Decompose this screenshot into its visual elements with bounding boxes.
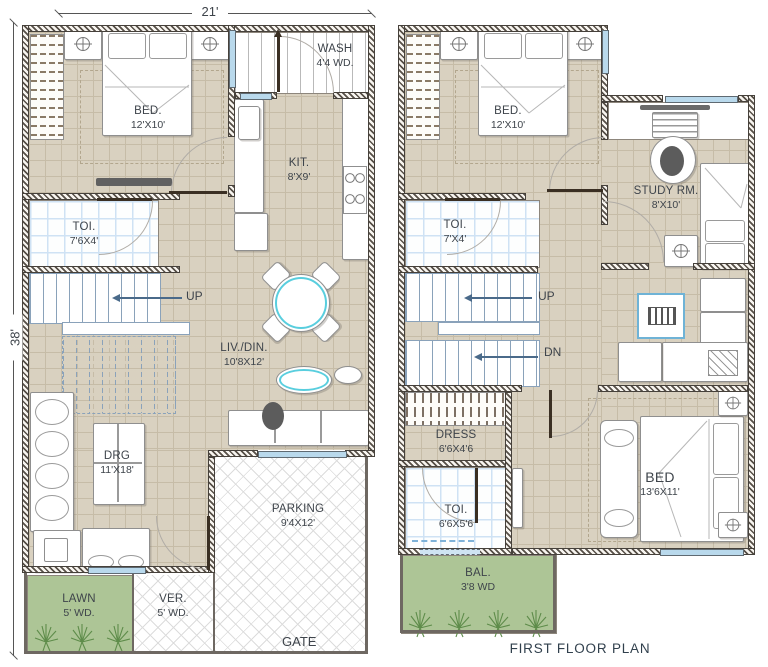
gf-plot-bottom bbox=[24, 651, 368, 654]
gf-nightstand-left bbox=[64, 28, 102, 60]
gf-bed-door-leaf bbox=[169, 191, 227, 194]
room-size: 7'6X4' bbox=[52, 235, 116, 249]
ff-lobby-seat bbox=[618, 342, 662, 382]
ff-up-label: UP bbox=[538, 289, 555, 303]
gf-ver-label: VER. 5' WD. bbox=[131, 592, 215, 621]
ff-stairs-flight-dn bbox=[405, 340, 540, 387]
cushion bbox=[604, 429, 634, 447]
pillow bbox=[705, 220, 745, 242]
ff-wall-dress-bottom bbox=[398, 460, 512, 467]
pillow bbox=[705, 243, 745, 265]
pillow bbox=[713, 423, 739, 475]
ff-nightstand-left bbox=[440, 28, 478, 60]
gf-wall-right bbox=[368, 25, 375, 457]
room-name: TOI. bbox=[415, 218, 495, 233]
gf-toi-label: TOI. 7'6X4' bbox=[52, 220, 116, 249]
room-size: 5' WD. bbox=[131, 607, 215, 621]
room-size: 12'X10' bbox=[108, 119, 188, 133]
gf-mirror-table bbox=[276, 366, 332, 394]
room-name: DRESS bbox=[412, 428, 500, 443]
ff-up-arrowhead bbox=[464, 294, 472, 302]
ff-master-door-leaf bbox=[549, 390, 552, 438]
gf-dining-table bbox=[272, 274, 330, 332]
ff-dn-arrowhead bbox=[474, 353, 482, 361]
room-name: BED bbox=[618, 468, 702, 486]
fan-symbol-icon bbox=[724, 394, 742, 412]
fan-symbol-icon bbox=[449, 34, 469, 54]
gf-drg-seats bbox=[30, 392, 74, 532]
ff-wall-bed1-right-a bbox=[601, 102, 608, 140]
ff-bed-label: BED. 12'X10' bbox=[468, 104, 548, 133]
gf-wall-top bbox=[22, 25, 375, 32]
room-name: BED. bbox=[108, 104, 188, 119]
ground-floor-plan: 21' 38' bbox=[0, 0, 384, 667]
gf-wall-wash-bottom-r bbox=[333, 92, 368, 99]
room-name: LAWN bbox=[37, 592, 121, 607]
gf-wash-label: WASH 4'4 WD. bbox=[302, 42, 368, 71]
ff-wall-right bbox=[748, 95, 755, 555]
ff-wall-left bbox=[398, 25, 405, 555]
room-size: 10'8X12' bbox=[202, 356, 286, 370]
room-size: 6'6X5'6 bbox=[412, 518, 500, 532]
room-name: BAL. bbox=[428, 566, 528, 581]
ff-wall-dress-right bbox=[505, 392, 512, 553]
ff-shower-line bbox=[412, 540, 474, 542]
ff-dress-wardrobe bbox=[405, 392, 507, 426]
gf-toi-door-leaf bbox=[97, 198, 152, 201]
gf-wall-toi-bottom bbox=[22, 266, 180, 273]
fan-symbol-icon bbox=[724, 516, 742, 534]
room-name: KIT. bbox=[268, 156, 330, 171]
ff-bed1-door-leaf bbox=[547, 189, 603, 192]
gf-wardrobe bbox=[30, 34, 64, 140]
gf-person-figure bbox=[262, 402, 284, 430]
ff-toi-lower-label: TOI. 6'6X5'6 bbox=[412, 503, 500, 532]
ff-toi1-door-leaf bbox=[445, 198, 500, 201]
table-accent-ring bbox=[275, 277, 327, 329]
ff-master-bed-label: BED 13'6X11' bbox=[618, 468, 702, 500]
room-name: TOI. bbox=[412, 503, 500, 518]
room-size: 6'6X4'6 bbox=[412, 443, 500, 457]
ff-nightstand-right bbox=[566, 28, 604, 60]
ff-master-side-table bbox=[718, 512, 748, 538]
gf-plot-right bbox=[365, 457, 368, 654]
gf-window-drg bbox=[88, 567, 146, 574]
gf-livdin-label: LIV./DIN. 10'8X12' bbox=[202, 341, 286, 370]
room-size: 13'6X11' bbox=[618, 486, 702, 500]
gf-kitchen-cabinet bbox=[234, 213, 268, 251]
gf-wash-basin bbox=[334, 366, 362, 384]
ff-tv-unit bbox=[637, 293, 685, 339]
room-name: VER. bbox=[131, 592, 215, 607]
ff-toi-upper-label: TOI. 7'X4' bbox=[415, 218, 495, 247]
gf-bed-label: BED. 12'X10' bbox=[108, 104, 188, 133]
cushion bbox=[35, 495, 69, 521]
gf-stairs-flight bbox=[29, 273, 161, 324]
gf-lawn-label: LAWN 5' WD. bbox=[37, 592, 121, 621]
gf-stairs-rail bbox=[62, 322, 190, 335]
fan-symbol-icon bbox=[575, 34, 595, 54]
cushion bbox=[35, 431, 69, 457]
ff-window-master bbox=[660, 549, 744, 556]
cushion bbox=[604, 509, 634, 527]
sofa-seam bbox=[320, 411, 322, 443]
gf-stairs-upper-dashed bbox=[62, 336, 176, 414]
ff-desk-monitor bbox=[640, 105, 710, 110]
gf-window-wash-bottom bbox=[240, 93, 272, 100]
ff-wall-hall-bottom-l bbox=[398, 385, 522, 392]
tv-speaker-grill bbox=[648, 307, 676, 325]
room-name: TOI. bbox=[52, 220, 116, 235]
gf-nightstand-right bbox=[190, 28, 230, 60]
gf-sofa bbox=[228, 410, 369, 446]
ff-wall-top bbox=[398, 25, 608, 32]
ff-wall-hall-bottom-r bbox=[598, 385, 748, 392]
ff-dn-label: DN bbox=[544, 345, 561, 359]
room-size: 3'8 WD bbox=[428, 581, 528, 595]
gf-corner-table-inner bbox=[44, 538, 68, 562]
ff-stairs-rail bbox=[438, 322, 540, 335]
room-size: 11'X18' bbox=[75, 464, 159, 478]
room-size: 5' WD. bbox=[37, 607, 121, 621]
gf-stairs-arrow bbox=[120, 297, 182, 299]
ff-lobby-cabinet bbox=[700, 312, 746, 344]
gf-kitchen-sink bbox=[238, 106, 260, 140]
pillow bbox=[525, 33, 563, 59]
gf-entry-door-leaf bbox=[207, 516, 210, 570]
pillow bbox=[484, 33, 522, 59]
room-size: 12'X10' bbox=[468, 119, 548, 133]
gf-wall-parking-top-l bbox=[208, 450, 258, 457]
ff-bal-label: BAL. 3'8 WD bbox=[428, 566, 528, 595]
gf-wash-door-arrow bbox=[274, 29, 282, 37]
room-size: 8'X10' bbox=[618, 199, 714, 213]
gf-stove-icon bbox=[343, 166, 367, 214]
ff-bal-left bbox=[400, 555, 403, 633]
ff-bal-bottom bbox=[400, 630, 556, 633]
cushion bbox=[35, 463, 69, 489]
ff-single-bed bbox=[700, 163, 750, 269]
pillow bbox=[149, 33, 187, 59]
ff-wall-study-top-l bbox=[601, 95, 663, 102]
gf-wall-parking-top-r bbox=[345, 450, 375, 457]
ff-wall-study-bottom-l bbox=[601, 263, 649, 270]
ff-bal-right bbox=[553, 555, 556, 633]
ff-lobby-cabinet bbox=[700, 278, 746, 312]
room-size: 4'4 WD. bbox=[302, 57, 368, 71]
ff-person-figure bbox=[660, 146, 684, 176]
room-name: PARKING bbox=[252, 502, 344, 517]
room-name: DRG bbox=[75, 449, 159, 464]
ff-wall-toi1-bottom bbox=[398, 266, 538, 273]
fan-symbol-icon bbox=[671, 241, 691, 261]
gf-parking-label: PARKING 9'4X12' bbox=[252, 502, 344, 531]
gf-window-parking bbox=[258, 451, 347, 458]
room-size: 8'X9' bbox=[268, 171, 330, 185]
ff-dress-label: DRESS 6'6X4'6 bbox=[412, 428, 500, 457]
ff-window-bed1 bbox=[602, 30, 609, 74]
ff-sliding-panel bbox=[512, 468, 523, 528]
room-size: 7'X4' bbox=[415, 233, 495, 247]
gf-plot-left bbox=[24, 573, 27, 653]
gf-gate-label: GATE bbox=[282, 634, 316, 649]
ff-wardrobe bbox=[406, 34, 440, 140]
dim-height-label: 38' bbox=[8, 315, 23, 361]
ff-window-study bbox=[665, 96, 738, 103]
gf-tv-console bbox=[96, 178, 172, 186]
room-size: 9'4X12' bbox=[252, 517, 344, 531]
gf-kit-label: KIT. 8'X9' bbox=[268, 156, 330, 185]
ff-master-side-table bbox=[718, 390, 748, 416]
room-name: LIV./DIN. bbox=[202, 341, 286, 356]
ff-up-arrow bbox=[472, 297, 532, 299]
pillow bbox=[108, 33, 146, 59]
gf-wash-door-leaf bbox=[277, 36, 280, 92]
ff-bal-door-opening bbox=[420, 549, 480, 555]
floor-plan-sheet: 21' 38' bbox=[0, 0, 768, 667]
gf-drg-label: DRG 11'X18' bbox=[75, 449, 159, 478]
gf-wall-bed-kit-stub bbox=[228, 185, 235, 197]
ff-plan-caption: FIRST FLOOR PLAN bbox=[470, 641, 690, 656]
room-name: BED. bbox=[468, 104, 548, 119]
ff-wall-study-bottom-r bbox=[693, 263, 755, 270]
mirror-accent-ring bbox=[279, 369, 329, 391]
ff-dn-arrow bbox=[482, 356, 538, 358]
ff-bench-pad bbox=[708, 350, 738, 376]
gf-wall-left bbox=[22, 25, 29, 573]
gf-parking-floor bbox=[215, 457, 365, 651]
room-name: WASH bbox=[302, 42, 368, 57]
fan-symbol-icon bbox=[200, 34, 220, 54]
gf-window-wash-left bbox=[229, 30, 236, 88]
room-name: STUDY RM. bbox=[618, 184, 714, 199]
cushion bbox=[35, 399, 69, 425]
dim-width-label: 21' bbox=[192, 4, 228, 19]
gf-stairs-arrowhead bbox=[112, 294, 120, 302]
gf-up-label: UP bbox=[186, 289, 203, 303]
fan-symbol-icon bbox=[73, 34, 93, 54]
ff-study-label: STUDY RM. 8'X10' bbox=[618, 184, 714, 213]
ff-desk-keyboard bbox=[652, 112, 698, 138]
